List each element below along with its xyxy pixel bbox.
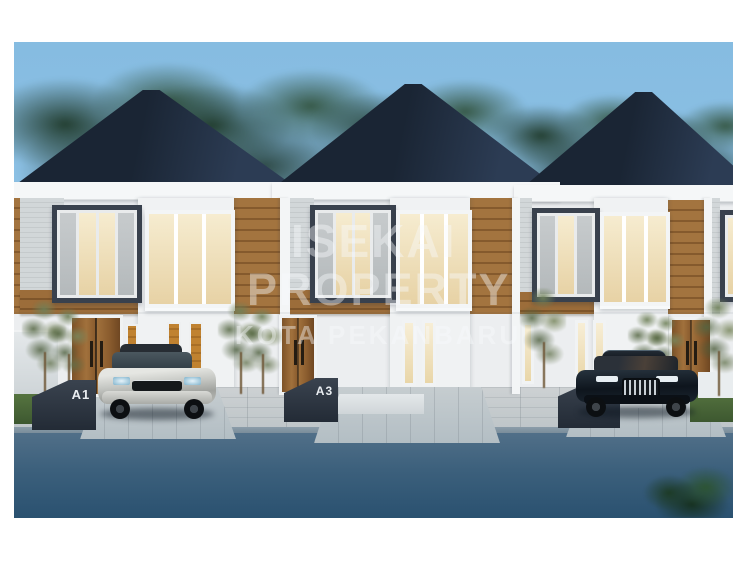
window-pane [149, 214, 174, 304]
upper-window-dark-frame [52, 205, 142, 303]
ornamental-tree [520, 288, 566, 388]
window-pane [79, 213, 95, 295]
headlight [596, 376, 618, 382]
wood-panel [668, 200, 704, 314]
watermark-line-1: ISEKAI [291, 218, 521, 264]
suv-grille [132, 380, 182, 391]
watermark-line-3: KOTA PEKANBARU [235, 322, 521, 348]
window-panes [604, 216, 666, 302]
silver-suv [98, 344, 216, 420]
stone-cladding [712, 198, 720, 314]
upper-window-white-frame [145, 210, 235, 308]
property-photo: A1 A3 A5 [14, 42, 733, 518]
wheel [184, 399, 204, 419]
window-panes [149, 214, 231, 304]
road [14, 431, 733, 518]
ornamental-tree [694, 298, 733, 396]
window-panes [537, 213, 595, 297]
window-pane [626, 216, 644, 302]
window-pane [540, 216, 555, 294]
window-pane [178, 214, 203, 304]
ramp-wall [332, 394, 424, 414]
headlight [113, 377, 130, 385]
upper-window-dark-frame [720, 210, 733, 302]
dark-sedan [576, 350, 698, 418]
unit-label: A1 [72, 387, 91, 402]
watermark: ISEKAI PROPERTY KOTA PEKANBARU [235, 218, 521, 348]
window-pane [728, 218, 733, 294]
watermark-line-2: PROPERTY [247, 267, 521, 312]
upper-window-white-frame [600, 212, 670, 306]
window-pane [558, 216, 573, 294]
wheel [586, 397, 606, 417]
headlight [184, 377, 201, 385]
window-pane [577, 216, 592, 294]
foreground-bush [642, 462, 733, 518]
window-pane [604, 216, 622, 302]
window-pane [118, 213, 134, 295]
photo-frame: A1 A3 A5 [0, 0, 750, 563]
window-panes [725, 215, 733, 297]
window-pane [99, 213, 115, 295]
wheel [110, 399, 130, 419]
unit-label: A3 [316, 384, 333, 398]
window-pane [648, 216, 666, 302]
window-pane [60, 213, 76, 295]
wheel [666, 397, 686, 417]
window-panes [57, 210, 137, 298]
window-pane [206, 214, 231, 304]
